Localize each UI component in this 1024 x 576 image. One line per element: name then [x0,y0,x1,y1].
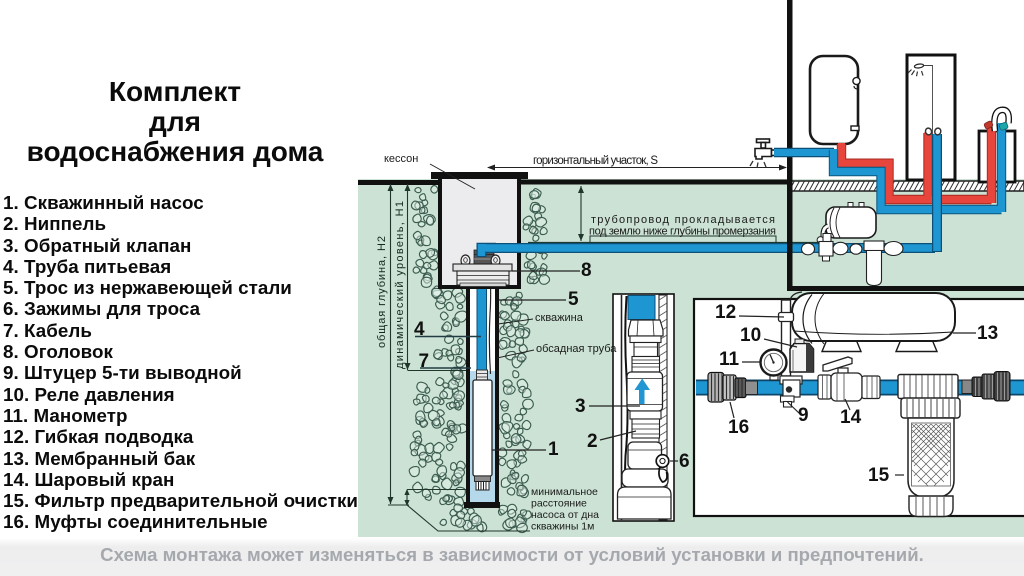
svg-text:7: 7 [419,351,430,372]
svg-text:скважина: скважина [535,312,584,324]
svg-text:12: 12 [715,302,736,323]
svg-text:16: 16 [728,417,749,438]
svg-text:кессон: кессон [384,153,418,165]
svg-text:трубопровод прокладывается: трубопровод прокладывается [591,214,775,226]
svg-text:горизонтальный участок, S: горизонтальный участок, S [533,155,658,167]
svg-text:9: 9 [798,405,809,426]
svg-text:2: 2 [587,431,598,452]
svg-text:3: 3 [575,396,586,417]
svg-text:1: 1 [548,439,559,460]
svg-text:11: 11 [719,349,740,370]
svg-text:минимальное: минимальное [531,486,598,498]
svg-text:скважины 1м: скважины 1м [531,521,594,533]
svg-text:15: 15 [868,465,890,486]
svg-text:под землю ниже глубины промерз: под землю ниже глубины промерзания [589,226,776,238]
svg-text:общая глубина, Н2: общая глубина, Н2 [376,236,388,348]
svg-text:14: 14 [840,407,862,428]
svg-text:6: 6 [679,451,690,472]
svg-text:5: 5 [568,289,579,310]
svg-text:13: 13 [977,323,998,344]
svg-text:10: 10 [740,325,761,346]
svg-text:8: 8 [581,260,592,281]
svg-text:расстояние: расстояние [531,498,587,510]
svg-text:4: 4 [414,319,425,340]
svg-text:обсадная труба: обсадная труба [536,343,617,355]
svg-text:насоса от дна: насоса от дна [531,509,599,521]
